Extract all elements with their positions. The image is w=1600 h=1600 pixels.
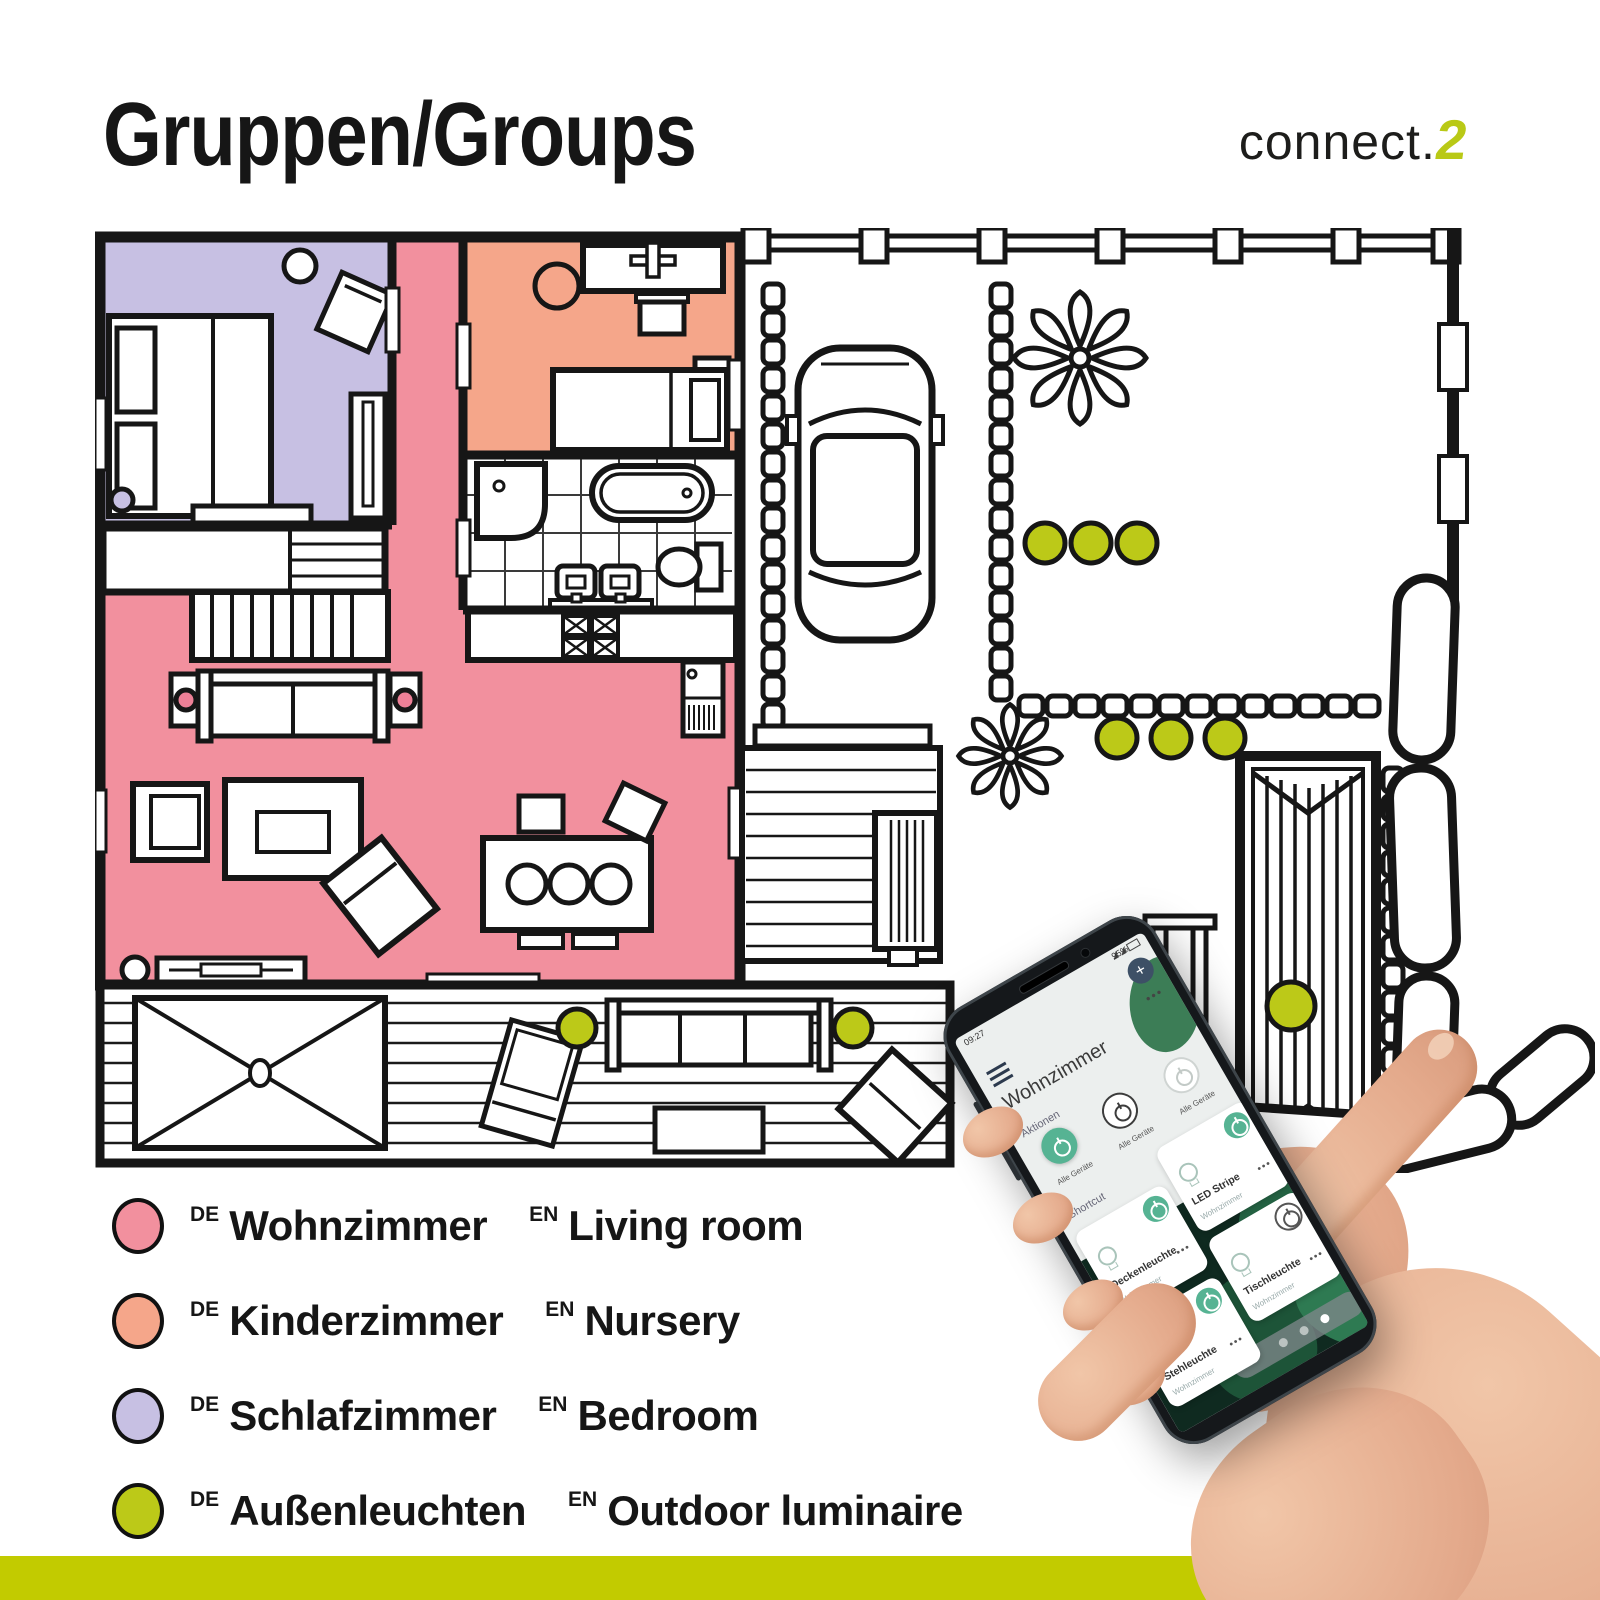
power-toggle[interactable] — [1191, 1283, 1227, 1319]
card-more-icon[interactable]: ••• — [1174, 1242, 1193, 1259]
hamburger-menu-icon[interactable] — [986, 1062, 1016, 1091]
page-title: Gruppen/Groups — [103, 84, 696, 187]
card-more-icon[interactable]: ••• — [1255, 1158, 1274, 1175]
power-toggle[interactable] — [1138, 1191, 1174, 1227]
phone-camera — [1079, 946, 1093, 960]
brand-z-glyph: 2 — [1432, 112, 1472, 168]
battery-percent: 95% — [1110, 944, 1131, 962]
card-more-icon[interactable]: ••• — [1307, 1248, 1326, 1265]
nav-dot[interactable] — [1319, 1312, 1331, 1324]
legend-item-nursery: DE Kinderzimmer EN Nursery — [112, 1295, 963, 1347]
deck — [100, 985, 951, 1163]
car — [787, 348, 943, 640]
legend-color-outdoor — [112, 1483, 164, 1539]
floor-plan — [95, 228, 1595, 1173]
brand-text: connect. — [1239, 114, 1436, 170]
garden-gate — [1240, 756, 1376, 1160]
entry-porch — [742, 726, 940, 965]
nav-dot[interactable] — [1298, 1324, 1310, 1336]
legend-color-living — [112, 1198, 164, 1254]
bulb-icon — [1175, 1159, 1201, 1185]
plant — [1014, 292, 1146, 424]
page: Gruppen/Groups connect.2 — [0, 0, 1600, 1600]
card-more-icon[interactable]: ••• — [1227, 1333, 1246, 1350]
power-toggle[interactable] — [1219, 1107, 1255, 1143]
stone-path — [1019, 696, 1379, 716]
nav-dot[interactable] — [1277, 1336, 1289, 1348]
legend-item-bedroom: DE Schlafzimmer EN Bedroom — [112, 1390, 963, 1442]
legend: DE Wohnzimmer EN Living room DE Kinderzi… — [112, 1200, 963, 1580]
stone-path — [763, 284, 783, 728]
stone-path — [991, 284, 1011, 700]
brand-logo: connect.2 — [1239, 112, 1468, 171]
legend-item-outdoor: DE Außenleuchten EN Outdoor luminaire — [112, 1485, 963, 1537]
power-toggle[interactable] — [1269, 1198, 1307, 1236]
power-dim-icon[interactable] — [1157, 1051, 1206, 1100]
power-off-icon[interactable] — [1096, 1086, 1145, 1135]
bulb-icon — [1094, 1243, 1120, 1269]
plant — [959, 705, 1062, 808]
boundary-wall — [1439, 230, 1467, 618]
garden-fence — [740, 228, 1459, 262]
legend-color-nursery — [112, 1293, 164, 1349]
bulb-icon — [1227, 1249, 1253, 1275]
legend-item-living: DE Wohnzimmer EN Living room — [112, 1200, 963, 1252]
clock: 09:27 — [962, 1028, 987, 1048]
legend-color-bedroom — [112, 1388, 164, 1444]
